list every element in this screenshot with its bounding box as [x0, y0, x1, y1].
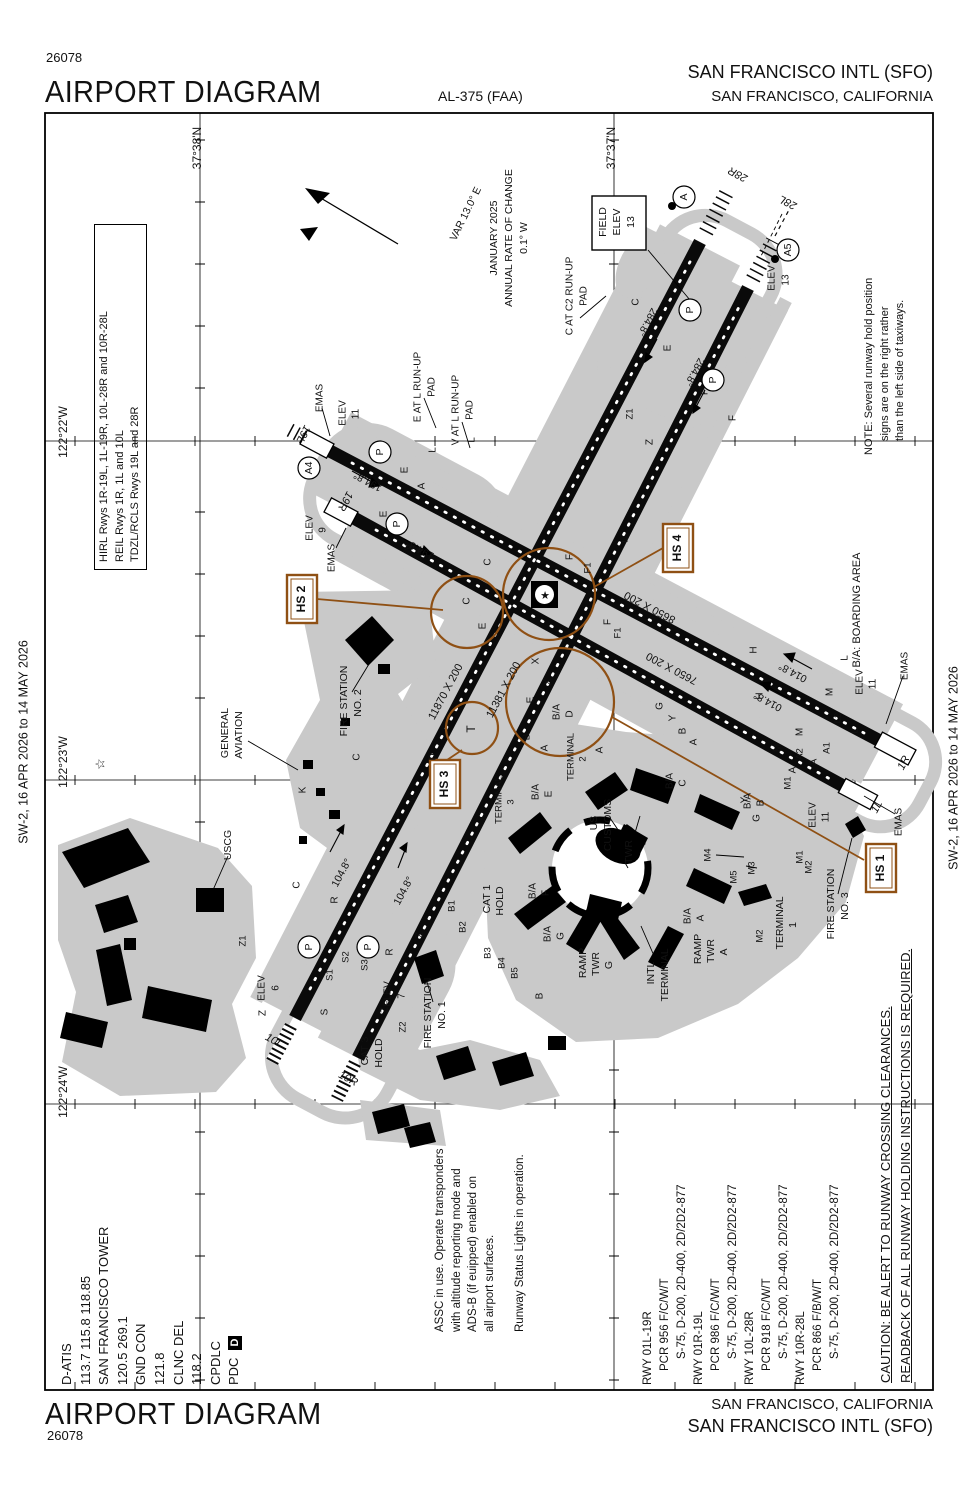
- airport-diagram-page: 26078 AIRPORT DIAGRAM AL-375 (FAA) SAN F…: [0, 0, 978, 1500]
- note-line: than the left side of taxiways.: [893, 155, 909, 455]
- diagram-label: 13: [781, 274, 792, 286]
- freq-line: SAN FRANCISCO TOWER: [95, 1050, 114, 1385]
- diagram-label: 11: [821, 811, 832, 822]
- diagram-label: B2: [458, 921, 469, 933]
- diagram-label: 13: [625, 216, 637, 228]
- freq-line: CLNC DEL: [170, 1050, 189, 1385]
- diagram-label: C: [631, 298, 642, 305]
- diagram-label: 6: [271, 985, 282, 991]
- hotspot-label: HS 4: [670, 534, 684, 561]
- diagram-label: TERMINAL: [774, 896, 786, 949]
- diagram-label: V AT L RUN-UP: [451, 374, 462, 445]
- hotspot-label: HS 2: [294, 585, 308, 612]
- diagram-label: GENERAL: [219, 708, 231, 758]
- rwy-pcr: PCR 918 F/C/W/T: [759, 1073, 776, 1385]
- diagram-label: ELEV: [808, 802, 819, 828]
- diagram-label: F1: [583, 562, 594, 573]
- diagram-label: F1: [613, 627, 624, 638]
- circled-taxiway-label: P: [386, 513, 408, 535]
- airport-city-bottom: SAN FRANCISCO, CALIFORNIA: [711, 1396, 933, 1413]
- diagram-label: L: [428, 447, 439, 453]
- diagram-label: S: [320, 1008, 331, 1015]
- rwy-pcr: PCR 986 F/C/W/T: [708, 1073, 725, 1385]
- north-arrow-icon: [300, 188, 398, 244]
- note-line: signs are on the right rather: [878, 155, 894, 455]
- diagram-label: Z2: [398, 1021, 409, 1032]
- diagram-label: B: [756, 799, 767, 806]
- rwy-strength: S-75, D-200, 2D-400, 2D/2D2-877: [776, 1073, 793, 1385]
- diagram-label: ELEV: [855, 669, 866, 695]
- svg-text:P: P: [303, 943, 315, 950]
- diagram-label: A: [689, 738, 700, 745]
- diagram-label: E: [544, 790, 555, 797]
- rwy-name: RWY 10L-28R: [742, 1073, 759, 1385]
- diagram-label: US: [588, 816, 600, 831]
- diagram-label: E: [663, 344, 674, 351]
- assc-line: all airport surfaces.: [482, 1080, 499, 1332]
- diagram-label: R: [385, 948, 396, 955]
- diagram-label: R: [330, 896, 341, 903]
- lighting-line: REIL Rwys 1R, 1L and 10L: [113, 232, 129, 562]
- svg-text:A4: A4: [303, 461, 315, 474]
- rwsl-line: Runway Status Lights in operation.: [512, 1080, 529, 1332]
- diagram-label: B/A: [543, 926, 554, 942]
- diagram-label: EMAS: [900, 652, 911, 681]
- diagram-label: Z1: [238, 935, 249, 946]
- circled-taxiway-label: P: [702, 369, 724, 391]
- rwy-strength: S-75, D-200, 2D-400, 2D/2D2-877: [725, 1073, 742, 1385]
- hotspot-label: HS 3: [437, 770, 451, 797]
- diagram-label: PAD: [465, 400, 476, 420]
- diagram-label: B5: [510, 967, 521, 979]
- svg-text:P: P: [684, 306, 696, 313]
- svg-text:P: P: [391, 520, 403, 527]
- diagram-label: CAT 1: [481, 884, 493, 913]
- diagram-label: G: [655, 702, 666, 710]
- rwy-name: RWY 10R-28L: [793, 1073, 810, 1385]
- diagram-label: M: [825, 688, 836, 696]
- diagram-label: M: [795, 728, 806, 736]
- diagram-label: 37°38'N: [190, 127, 204, 169]
- diagram-label: M: [773, 744, 784, 752]
- diagram-label: M4: [703, 848, 714, 861]
- diagram-label: B1: [447, 900, 458, 912]
- diagram-label: S2: [341, 951, 352, 963]
- diagram-label: FIRE STATION: [422, 978, 434, 1049]
- rwy-name: RWY 01R-19L: [691, 1073, 708, 1385]
- rwy-strength: S-75, D-200, 2D-400, 2D/2D2-877: [674, 1073, 691, 1385]
- freq-line: PDCD: [225, 1050, 244, 1385]
- hotspot-box-hs4: HS 4: [663, 524, 693, 572]
- diagram-label: A: [809, 758, 820, 765]
- diagram-label: 122°22'W: [56, 405, 70, 457]
- diagram-label: B/A: [665, 773, 676, 789]
- diagram-label: G: [603, 961, 615, 969]
- diagram-label: 37°37'N: [604, 127, 618, 169]
- rwy-name: RWY 01L-19R: [640, 1073, 657, 1385]
- freq-line: GND CON: [132, 1050, 151, 1385]
- diagram-label: B: [535, 992, 546, 999]
- diagram-label: M3: [747, 861, 758, 874]
- diagram-label: A: [417, 482, 428, 489]
- diagram-label: Z: [258, 1010, 269, 1016]
- frequency-block: D-ATIS 113.7 115.8 118.85 SAN FRANCISCO …: [58, 1050, 244, 1385]
- diagram-label: E: [526, 696, 537, 703]
- diagram-label: TERMINAL: [566, 733, 577, 781]
- diagram-label: EMAS: [315, 384, 326, 413]
- note-line: NOTE: Several runway hold position: [862, 155, 878, 455]
- circled-taxiway-label: A4: [298, 457, 320, 479]
- diagram-label: B/A: [552, 704, 563, 720]
- diagram-label: TWR: [590, 952, 602, 976]
- diagram-label: EMAS: [327, 544, 338, 573]
- diagram-label: TWR: [623, 840, 635, 864]
- freq-line: 118.2: [188, 1050, 207, 1385]
- diagram-label: H: [749, 646, 760, 653]
- diagram-label: E AT L RUN-UP: [413, 351, 424, 422]
- diagram-label: L: [620, 537, 631, 543]
- diagram-label: ELEV: [257, 975, 268, 1001]
- caution-note: CAUTION: BE ALERT TO RUNWAY CROSSING CLE…: [876, 858, 916, 1383]
- diagram-label: C: [462, 597, 473, 604]
- rwy-strength: S-75, D-200, 2D-400, 2D/2D2-877: [827, 1073, 844, 1385]
- diagram-label: NO. 1: [436, 1001, 448, 1029]
- svg-text:P: P: [362, 943, 374, 950]
- diagram-label: USCG: [222, 830, 234, 860]
- diagram-label: F: [565, 554, 576, 560]
- svg-text:P: P: [374, 448, 386, 455]
- diagram-label: ★: [540, 590, 550, 602]
- circled-taxiway-label: P: [357, 936, 379, 958]
- runway-data-block: RWY 01L-19R PCR 956 F/C/W/T S-75, D-200,…: [640, 1073, 844, 1385]
- diagram-label: B/A: BOARDING AREA: [851, 552, 863, 668]
- diagram-label: Z: [380, 1007, 391, 1013]
- diagram-label: B4: [497, 957, 508, 969]
- diagram-label: S3: [360, 959, 371, 971]
- diagram-label: D: [565, 710, 576, 717]
- diagram-label: 28L: [777, 192, 800, 212]
- assc-line: with altitude reporting mode and: [449, 1080, 466, 1332]
- diagram-label: 11: [868, 678, 879, 689]
- caution-line: CAUTION: BE ALERT TO RUNWAY CROSSING CLE…: [876, 858, 896, 1383]
- assc-line: ASSC in use. Operate transponders: [432, 1080, 449, 1332]
- diagram-label: C: [292, 881, 303, 888]
- diagram-label: A: [788, 766, 799, 773]
- diagram-label: A: [718, 948, 730, 955]
- caution-line: READBACK OF ALL RUNWAY HOLDING INSTRUCTI…: [896, 858, 916, 1383]
- diagram-label: 3: [506, 799, 517, 804]
- airport-name-bottom: SAN FRANCISCO INTL (SFO): [688, 1416, 933, 1437]
- hotspot-box-hs2: HS 2: [287, 575, 317, 623]
- svg-text:A: A: [678, 193, 690, 200]
- diagram-label: A: [595, 746, 606, 753]
- diagram-label: 2: [578, 756, 589, 761]
- freq-line: D-ATIS: [58, 1050, 77, 1385]
- freq-line: CPDLC: [207, 1050, 226, 1385]
- diagram-label: CUSTOMS: [602, 799, 614, 851]
- diagram-label: TERMINAL: [659, 948, 671, 1001]
- diagram-label: SW-2, 16 APR 2026 to 14 MAY 2026: [16, 640, 30, 844]
- diagram-label: FIELD: [597, 207, 609, 237]
- circled-taxiway-label: A5: [777, 239, 799, 261]
- diagram-label: K: [298, 786, 309, 793]
- diagram-label: ELEV: [383, 981, 394, 1007]
- diagram-label: 9: [318, 527, 329, 533]
- diagram-label: Z: [415, 932, 426, 938]
- diagram-label: L2: [833, 713, 844, 724]
- diagram-label: M1: [783, 776, 794, 789]
- diagram-label: C: [483, 558, 494, 565]
- diagram-label: HOLD: [494, 886, 506, 916]
- circled-taxiway-label: P: [679, 299, 701, 321]
- freq-line: 121.8: [151, 1050, 170, 1385]
- pdc-d-badge: D: [228, 1336, 242, 1350]
- diagram-label: M2: [804, 860, 815, 873]
- diagram-label: NO. 3: [839, 892, 851, 920]
- diagram-label: C AT C2 RUN-UP: [565, 256, 576, 335]
- diagram-label: SW-2, 16 APR 2026 to 14 MAY 2026: [946, 666, 960, 870]
- diagram-label: RAMP: [577, 948, 589, 978]
- diagram-label: G: [556, 932, 567, 940]
- diagram-label: INTL: [645, 961, 657, 984]
- diagram-label: M2: [755, 929, 766, 942]
- diagram-label: E: [478, 622, 489, 629]
- diagram-label: X: [543, 678, 554, 685]
- diagram-label: C: [678, 779, 689, 786]
- diagram-label: 122°23'W: [56, 735, 70, 787]
- taxiway-dot: [771, 255, 779, 263]
- diagram-label: Y: [740, 796, 751, 803]
- circled-taxiway-label: P: [369, 441, 391, 463]
- diagram-label: B3: [483, 947, 494, 959]
- diagram-label: 28R: [726, 164, 750, 185]
- circled-taxiway-label: A: [673, 186, 695, 208]
- diagram-label: E: [379, 510, 390, 517]
- diagram-label: F: [541, 890, 552, 896]
- diagram-label: A2: [795, 748, 806, 760]
- diagram-label: FIRE STATION: [825, 869, 837, 940]
- hold-position-note: NOTE: Several runway hold position signs…: [862, 155, 909, 455]
- diagram-label: 7: [397, 993, 408, 999]
- diagram-label: F: [728, 415, 739, 421]
- diagram-label: PAD: [579, 286, 590, 306]
- diagram-label: ELEV: [611, 209, 623, 236]
- rwy-pcr: PCR 866 F/B/W/T: [810, 1073, 827, 1385]
- diagram-label: C: [352, 753, 363, 760]
- diagram-label: TWR: [705, 939, 717, 963]
- svg-text:P: P: [707, 376, 719, 383]
- hotspot-box-hs3: HS 3: [430, 760, 460, 808]
- diagram-label: A: [540, 744, 551, 751]
- diagram-label: T: [464, 725, 478, 733]
- lighting-line: HIRL Rwys 1R-19L, 1L-19R, 10L-28R and 10…: [97, 232, 113, 562]
- diagram-label: B/A: [683, 908, 694, 924]
- diagram-label: NO. 2: [352, 689, 364, 717]
- diagram-label: A1: [822, 742, 833, 754]
- circled-taxiway-label: P: [298, 936, 320, 958]
- diagram-label: L: [467, 437, 478, 443]
- diagram-label: S1: [325, 969, 336, 981]
- diagram-label: X: [531, 657, 542, 664]
- diagram-label: AVIATION: [233, 711, 245, 758]
- diagram-label: ANNUAL RATE OF CHANGE: [503, 169, 515, 307]
- diagram-label: F: [603, 619, 614, 625]
- diagram-label: B: [522, 733, 533, 740]
- diagram-label: B/A: [528, 883, 539, 899]
- diagram-label: ELEV: [767, 265, 778, 291]
- diagram-label: EMAS: [894, 808, 905, 837]
- diagram-label: ELEV: [338, 400, 349, 426]
- diagram-label: M5: [729, 870, 740, 883]
- diagram-label: TERMINAL: [494, 776, 505, 824]
- diagram-label: PAD: [427, 377, 438, 397]
- diagram-label: 0.1° W: [518, 222, 530, 254]
- page-title-bottom: AIRPORT DIAGRAM: [45, 1396, 322, 1432]
- diagram-label: ☆: [92, 758, 107, 770]
- diagram-label: B/A: [531, 784, 542, 800]
- diagram-label: Z1: [625, 408, 636, 419]
- diagram-label: ELEV: [305, 515, 316, 541]
- diagram-label: L: [840, 655, 851, 661]
- diagram-label: 1: [787, 922, 799, 928]
- freq-line: 120.5 269.1: [114, 1050, 133, 1385]
- chart-number-bottom: 26078: [47, 1428, 83, 1443]
- diagram-label: FIRE STATION: [338, 666, 350, 737]
- diagram-label: RAMP: [692, 934, 704, 964]
- freq-line: 113.7 115.8 118.85: [77, 1050, 96, 1385]
- rwy-pcr: PCR 956 F/C/W/T: [657, 1073, 674, 1385]
- diagram-label: G: [752, 814, 763, 822]
- diagram-label: E: [400, 466, 411, 473]
- assc-note: ASSC in use. Operate transponders with a…: [432, 1080, 529, 1332]
- diagram-label: CAT 3: [359, 1036, 371, 1065]
- diagram-label: B: [678, 727, 689, 734]
- diagram-label: L: [850, 728, 861, 734]
- diagram-label: D: [428, 753, 439, 760]
- lighting-line: TDZL/RCLS Rwys 19L and 28R: [128, 232, 144, 562]
- diagram-label: Z: [645, 439, 656, 445]
- diagram-label: V: [404, 543, 415, 550]
- diagram-label: A: [696, 914, 707, 921]
- diagram-label: HOLD: [373, 1038, 385, 1068]
- diagram-label: H: [755, 692, 766, 699]
- diagram-label: VAR 13.0° E: [448, 185, 484, 243]
- assc-line: ADS-B (if euipped) enabled on: [465, 1080, 482, 1332]
- diagram-label: JANUARY 2025: [488, 200, 500, 275]
- lighting-box: HIRL Rwys 1R-19L, 1L-19R, 10L-28R and 10…: [94, 224, 147, 570]
- diagram-label: 11: [351, 408, 362, 419]
- svg-text:A5: A5: [782, 243, 794, 256]
- diagram-label: K: [409, 793, 420, 800]
- diagram-label: Y: [668, 714, 679, 721]
